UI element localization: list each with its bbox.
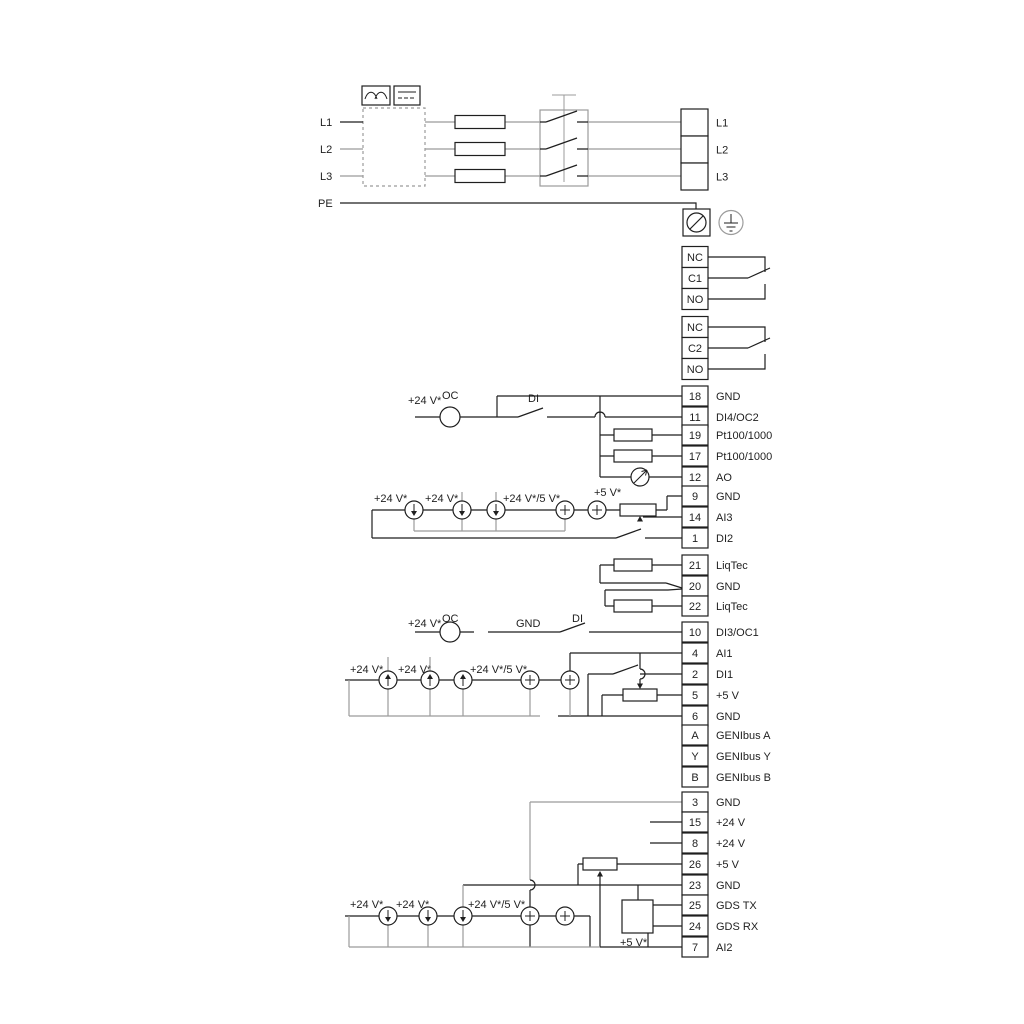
io-terminal-number: 8	[692, 838, 698, 850]
mains-l3-label: L3	[320, 171, 332, 183]
mains-output-label: L1	[716, 118, 728, 130]
io-terminal-label: Pt100/1000	[716, 451, 772, 463]
ai1-supply-a-label: +24 V*	[350, 664, 384, 676]
io-terminal-label: DI1	[716, 669, 733, 681]
ai2-supply-c-label: +24 V*/5 V*	[468, 899, 526, 911]
voltage-source-plus-icon	[561, 671, 579, 689]
ao-meter-icon	[631, 468, 649, 486]
io-terminal-number: 12	[689, 472, 701, 484]
ai3-supply-b-label: +24 V*	[425, 493, 459, 505]
io-terminal-label: AI2	[716, 942, 733, 954]
mains-pe-label: PE	[318, 198, 333, 210]
io-terminal-number: 9	[692, 491, 698, 503]
di4-supply-label: +24 V*	[408, 395, 442, 407]
voltage-source-plus-icon	[556, 501, 574, 519]
io-terminal-label: +5 V	[716, 690, 740, 702]
pt100-resistor-icon	[614, 450, 652, 462]
io-terminal-label: LiqTec	[716, 601, 748, 613]
relay-cell-label: C2	[688, 343, 702, 355]
io-terminal-number: 15	[689, 817, 701, 829]
io-terminal-label: AI1	[716, 648, 733, 660]
earth-icon	[719, 211, 743, 235]
io-terminal-number: 23	[689, 880, 701, 892]
io-terminal-number: 14	[689, 512, 701, 524]
io-terminal-label: AI3	[716, 512, 733, 524]
io-terminal-label: DI3/OC1	[716, 627, 759, 639]
io-terminal-label: AO	[716, 472, 732, 484]
di4-di-label: DI	[528, 393, 539, 405]
current-source-down-icon	[419, 907, 437, 925]
io-terminal-label: GND	[716, 711, 741, 723]
io-terminal-number: 25	[689, 900, 701, 912]
io-terminal-number: 20	[689, 581, 701, 593]
io-terminal-label: +24 V	[716, 838, 746, 850]
ai2-supply-a-label: +24 V*	[350, 899, 384, 911]
background	[0, 0, 1024, 1024]
dc-icon	[394, 86, 420, 105]
io-terminal-label: GND	[716, 581, 741, 593]
ai1-supply-c-label: +24 V*/5 V*	[470, 664, 528, 676]
voltage-source-plus-icon	[588, 501, 606, 519]
mains-terminal-cell	[681, 136, 708, 163]
io-terminal-number: 24	[689, 921, 701, 933]
io-terminal-number: B	[691, 772, 698, 784]
fuse-icon	[455, 143, 505, 156]
di3-di-label: DI	[572, 613, 583, 625]
io-terminal-label: Pt100/1000	[716, 430, 772, 442]
io-terminal-number: 7	[692, 942, 698, 954]
relay-cell-label: NO	[687, 364, 704, 376]
current-source-up-icon	[421, 671, 439, 689]
io-terminal-label: +24 V	[716, 817, 746, 829]
relay-cell-label: NC	[687, 252, 703, 264]
mains-output-label: L2	[716, 145, 728, 157]
gds-sensor-box	[622, 900, 653, 933]
io-terminal-number: 6	[692, 711, 698, 723]
current-source-down-icon	[405, 501, 423, 519]
mains-output-label: L3	[716, 172, 728, 184]
io-terminal-label: GND	[716, 391, 741, 403]
relay-cell-label: C1	[688, 273, 702, 285]
fuse-icon	[455, 116, 505, 129]
io-terminal-number: 1	[692, 533, 698, 545]
io-terminal-label: GDS RX	[716, 921, 759, 933]
io-terminal-number: A	[691, 730, 699, 742]
mains-l1-label: L1	[320, 117, 332, 129]
liqtec-sensor-icon	[614, 600, 652, 612]
voltage-source-plus-icon	[521, 671, 539, 689]
current-source-down-icon	[487, 501, 505, 519]
current-source-up-icon	[454, 671, 472, 689]
relay-cell-label: NC	[687, 322, 703, 334]
ai3-supply-c-label: +24 V*/5 V*	[503, 493, 561, 505]
io-terminal-label: GND	[716, 491, 741, 503]
io-terminal-label: DI4/OC2	[716, 412, 759, 424]
diagram-canvas: L1 L2 L3 PE	[0, 0, 1024, 1024]
io-terminal-label: GND	[716, 880, 741, 892]
oc-contact-icon	[440, 407, 460, 427]
io-terminal-label: +5 V	[716, 859, 740, 871]
io-terminal-number: 4	[692, 648, 698, 660]
current-source-down-icon	[379, 907, 397, 925]
relay-cell-label: NO	[687, 294, 704, 306]
mains-terminal-cell	[681, 163, 708, 190]
voltage-source-plus-icon	[556, 907, 574, 925]
di3-supply-label: +24 V*	[408, 618, 442, 630]
ai3-supply-a-label: +24 V*	[374, 493, 408, 505]
io-terminal-number: 22	[689, 601, 701, 613]
di3-gnd-label: GND	[516, 618, 541, 630]
io-terminal-label: DI2	[716, 533, 733, 545]
io-terminal-number: 18	[689, 391, 701, 403]
wiring-diagram: L1 L2 L3 PE	[0, 0, 1024, 1024]
current-source-down-icon	[454, 907, 472, 925]
io-terminal-label: GENIbus B	[716, 772, 771, 784]
io-terminal-label: LiqTec	[716, 560, 748, 572]
io-terminal-number: Y	[691, 751, 699, 763]
ac-icon	[362, 86, 390, 105]
io-terminal-label: GENIbus A	[716, 730, 771, 742]
io-terminal-number: 26	[689, 859, 701, 871]
io-terminal-number: 5	[692, 690, 698, 702]
fuse-icon	[455, 170, 505, 183]
io-terminal-label: GND	[716, 797, 741, 809]
io-terminal-number: 21	[689, 560, 701, 572]
io-terminal-label: GDS TX	[716, 900, 757, 912]
io-terminal-number: 17	[689, 451, 701, 463]
io-terminal-label: GENIbus Y	[716, 751, 771, 763]
pe-terminal-icon	[683, 209, 710, 236]
liqtec-sensor-icon	[614, 559, 652, 571]
current-source-up-icon	[379, 671, 397, 689]
oc-contact-icon	[440, 622, 460, 642]
mains-terminal-cell	[681, 109, 708, 136]
ai3-supply-d-label: +5 V*	[594, 487, 622, 499]
io-terminal-number: 2	[692, 669, 698, 681]
io-terminal-number: 3	[692, 797, 698, 809]
io-terminal-number: 10	[689, 627, 701, 639]
pt100-resistor-icon	[614, 429, 652, 441]
mains-l2-label: L2	[320, 144, 332, 156]
io-terminal-number: 11	[689, 412, 700, 424]
di4-oc-label: OC	[442, 390, 459, 402]
voltage-source-plus-icon	[521, 907, 539, 925]
io-terminal-number: 19	[689, 430, 701, 442]
current-source-down-icon	[453, 501, 471, 519]
